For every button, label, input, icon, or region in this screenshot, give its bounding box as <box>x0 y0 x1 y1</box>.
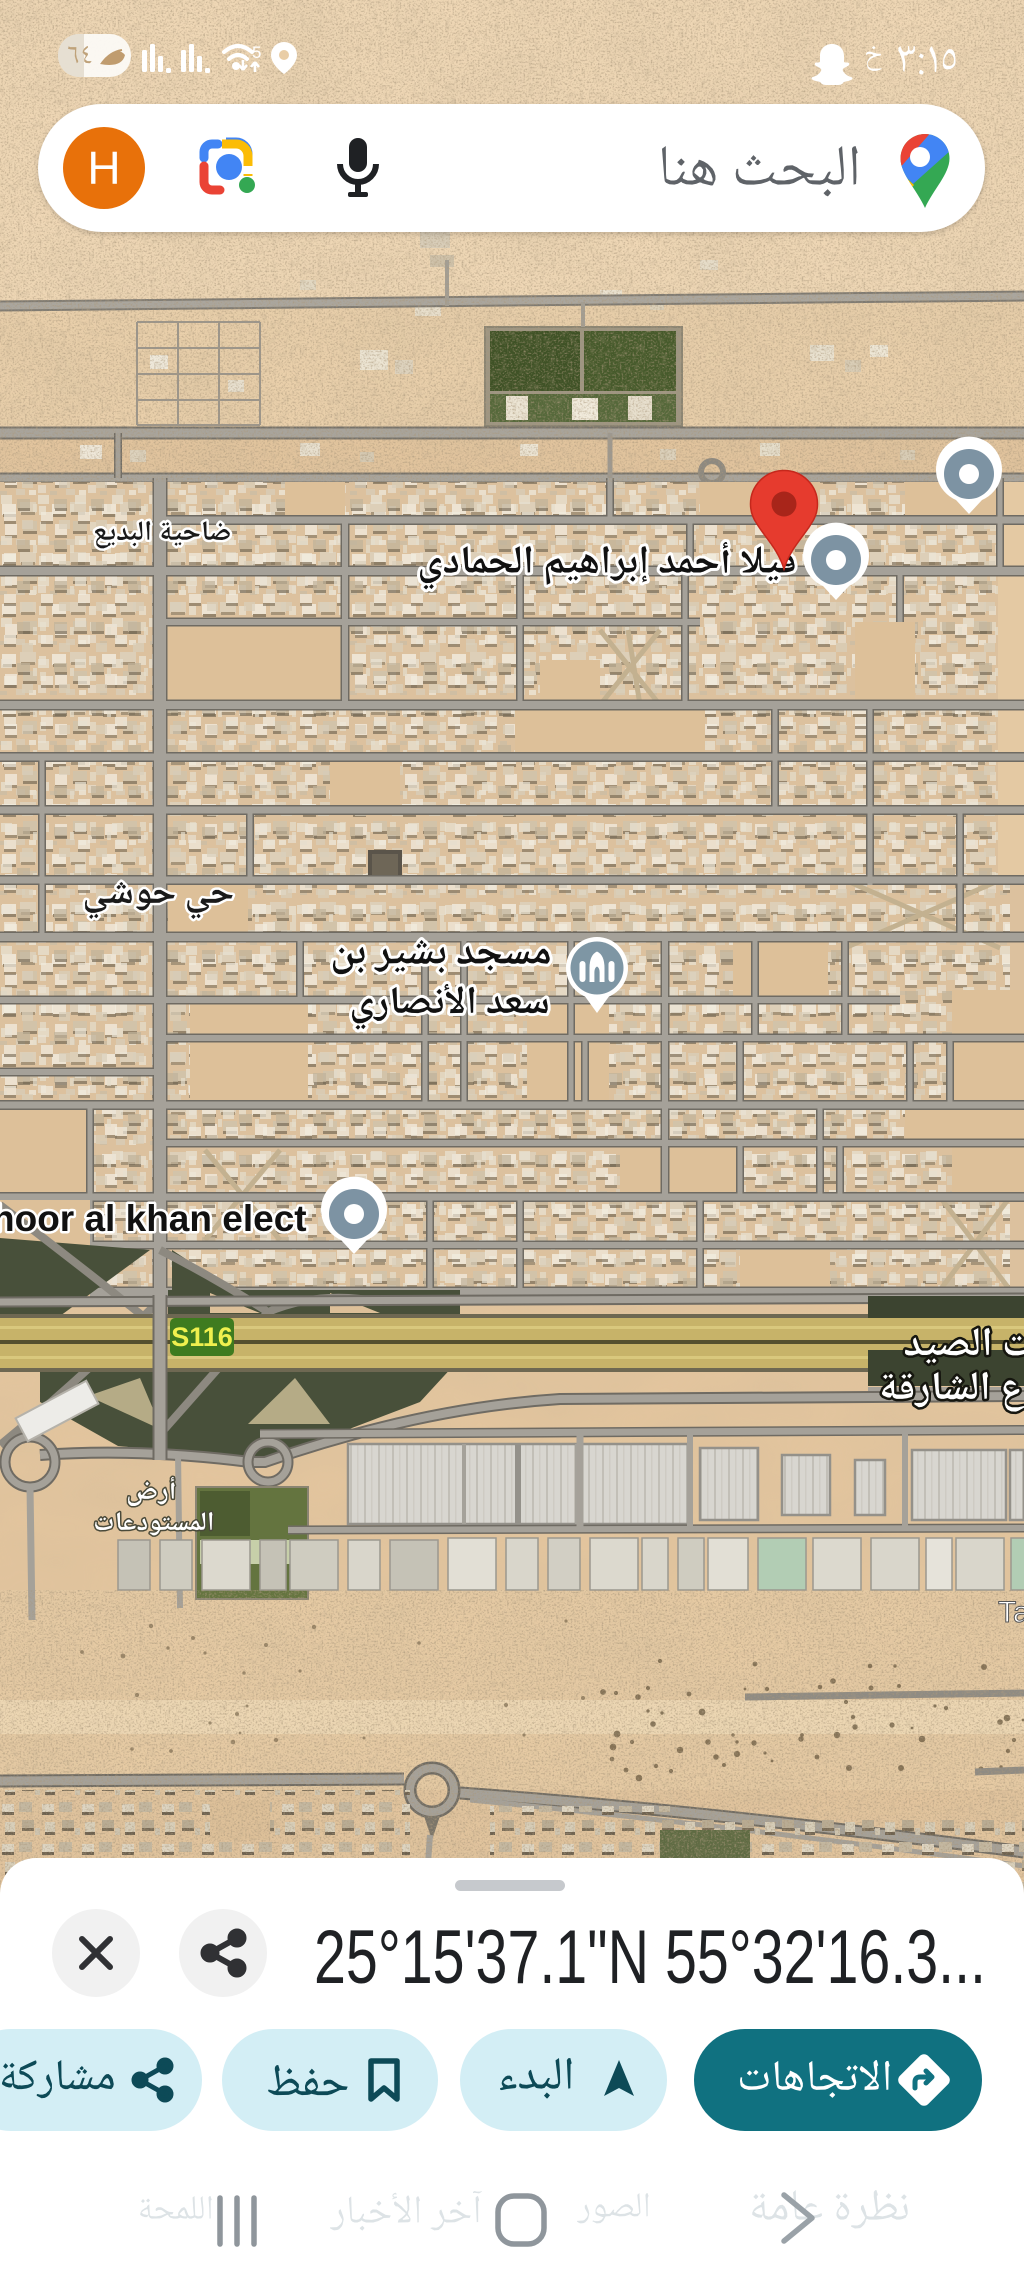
svg-text:S116: S116 <box>171 1322 233 1352</box>
svg-text:hoor al khan elect: hoor al khan elect <box>0 1198 307 1239</box>
svg-text:25°15'37.1"N 55°32'16.3...: 25°15'37.1"N 55°32'16.3... <box>314 1915 986 2000</box>
svg-text:H: H <box>87 142 120 194</box>
svg-text:Ta: Ta <box>998 1596 1024 1629</box>
